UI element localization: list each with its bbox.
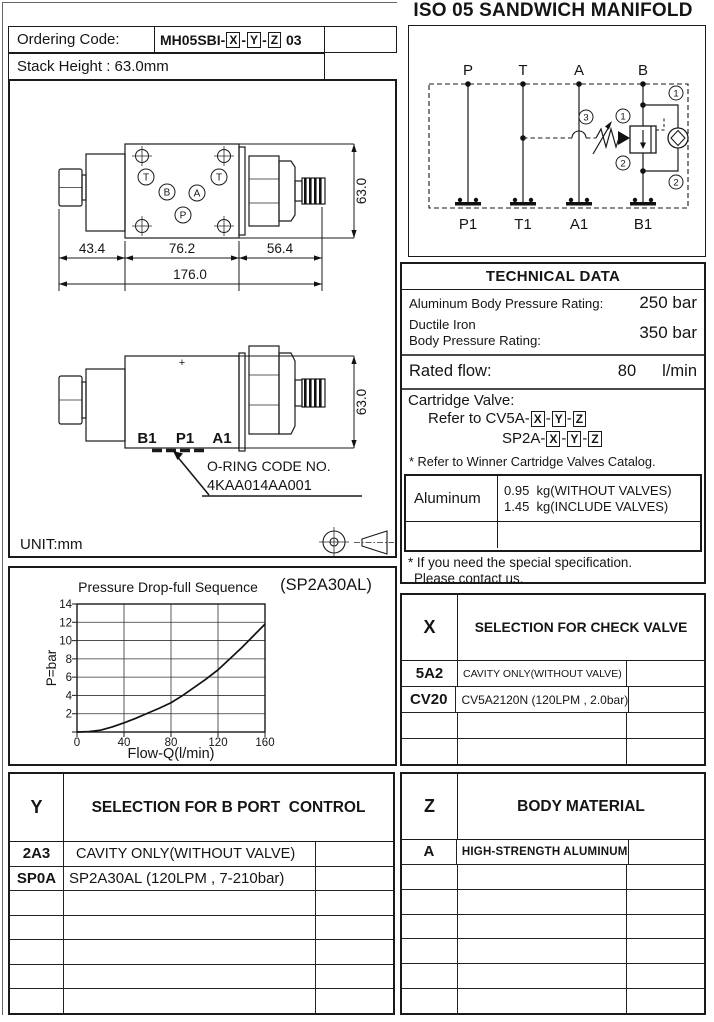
row-extra — [627, 964, 704, 988]
tick-label: 14 — [59, 599, 72, 611]
row-desc — [458, 939, 627, 963]
port-label-a: A — [574, 62, 584, 79]
table-row — [402, 713, 704, 739]
balloon-1-valve: 1 — [620, 112, 625, 123]
balloon-2-bottom: 2 — [673, 178, 678, 189]
cv5a-z-box: Z — [573, 411, 586, 427]
special-note-line2: Please contact us. — [408, 571, 632, 587]
cv5a-x-box: X — [531, 411, 545, 427]
row-extra — [316, 916, 393, 940]
tick-label: 12 — [59, 617, 72, 629]
row-extra — [627, 661, 704, 686]
iron-rating-value: 350 bar — [639, 323, 697, 343]
port-letter-b: B — [164, 188, 171, 199]
table-row — [402, 739, 704, 764]
row-extra — [627, 989, 704, 1013]
ordering-x-box: X — [226, 32, 240, 48]
cv5a-y-box: Y — [552, 411, 566, 427]
port-label-t1: T1 — [514, 216, 532, 233]
oring-leader-arrow — [173, 451, 183, 460]
row-desc — [458, 915, 627, 939]
pilot-step-dashed — [656, 118, 664, 130]
balloon-1-top: 1 — [673, 89, 678, 100]
dim-height-top: 63.0 — [354, 178, 369, 204]
port-symbols — [455, 198, 656, 206]
aluminum-rating-label: Aluminum Body Pressure Rating: — [409, 296, 603, 311]
iron-rating-label: Ductile IronBody Pressure Rating: — [409, 317, 541, 349]
table-title-y: SELECTION FOR B PORT CONTROL — [64, 774, 393, 841]
schematic-lines — [429, 81, 688, 208]
side-view-drawing: + B1 P1 A1 O-RING CODE NO. 4KAA014AA001 … — [59, 346, 369, 496]
spring-symbol — [596, 129, 619, 147]
port-letter-p: P — [180, 211, 187, 222]
table-row — [10, 989, 393, 1013]
ordering-suffix: 03 — [282, 32, 301, 48]
weight-row-empty — [406, 522, 700, 548]
row-extra — [629, 840, 704, 864]
row-desc: CV5A2120N (120LPM , 2.0bar) — [456, 687, 629, 712]
row-desc: CAVITY ONLY(WITHOUT VALVE) — [458, 661, 627, 686]
row-desc — [64, 989, 316, 1013]
row-code — [402, 890, 458, 914]
ordering-code-value: MH05SBI-X-Y-Z 03 — [155, 27, 325, 52]
sp2a-prefix: SP2A- — [502, 430, 545, 447]
rated-flow-unit: l/min — [662, 362, 697, 381]
row-code: A — [402, 840, 457, 864]
row-code: CV20 — [402, 687, 456, 712]
side-port-p1: P1 — [176, 430, 194, 447]
chart-title: Pressure Drop-full Sequence — [78, 579, 258, 595]
iron-rating-label-line2: Body Pressure Rating: — [409, 333, 541, 348]
aluminum-rating-value: 250 bar — [639, 293, 697, 313]
divider — [402, 388, 704, 390]
top-view-drawing: T T B A P 43.4 76.2 56.4 176.0 63.0 — [59, 144, 369, 291]
table-title-z: BODY MATERIAL — [458, 774, 704, 839]
tick-label: 6 — [66, 672, 72, 684]
weight-include-valves: 1.45 kg(INCLUDE VALVES) — [504, 499, 700, 515]
row-code — [402, 939, 458, 963]
row-extra — [627, 890, 704, 914]
table-row — [402, 890, 704, 915]
chart-gridlines — [77, 604, 265, 732]
port-label-a1: A1 — [570, 216, 588, 233]
row-code — [10, 916, 64, 940]
port-letter-t-right: T — [216, 173, 222, 184]
table-key-z: Z — [402, 774, 458, 839]
pressure-rating-iron-row: Ductile IronBody Pressure Rating: 350 ba… — [402, 314, 704, 352]
balloon-2-valve: 2 — [620, 159, 625, 170]
row-desc — [458, 713, 627, 738]
tick-label: 4 — [66, 690, 73, 702]
sp2a-y-box: Y — [567, 431, 581, 447]
port-label-p: P — [463, 62, 473, 79]
row-extra — [627, 939, 704, 963]
table-row: CV20CV5A2120N (120LPM , 2.0bar) — [402, 687, 704, 713]
weight-row-aluminum: Aluminum 0.95 kg(WITHOUT VALVES)1.45 kg(… — [406, 476, 700, 522]
side-port-b1: B1 — [137, 430, 156, 447]
dim-height-side: 63.0 — [354, 389, 369, 415]
table-row — [402, 989, 704, 1013]
row-extra — [316, 842, 393, 866]
port-label-b1: B1 — [634, 216, 652, 233]
balloon-3-adjust: 3 — [583, 113, 588, 124]
sep: - — [561, 430, 566, 447]
row-desc — [64, 940, 316, 964]
row-extra — [316, 965, 393, 989]
row-extra — [627, 865, 704, 889]
b-port-control-selection-table: Y SELECTION FOR B PORT CONTROL 2A3CAVITY… — [8, 772, 395, 1015]
cv5a-prefix: Refer to CV5A- — [428, 410, 530, 427]
table-header: Y SELECTION FOR B PORT CONTROL — [10, 774, 393, 842]
dim-76: 76.2 — [169, 241, 195, 256]
row-code: 2A3 — [10, 842, 64, 866]
tick-label: 8 — [66, 654, 72, 666]
sep: - — [546, 410, 551, 427]
tick-label: 2 — [66, 709, 72, 721]
weight-values: 0.95 kg(WITHOUT VALVES)1.45 kg(INCLUDE V… — [498, 476, 700, 521]
row-desc: SP2A30AL (120LPM , 7-210bar) — [64, 867, 316, 891]
pressure-drop-chart-box: Pressure Drop-full Sequence (SP2A30AL) 0… — [8, 566, 397, 766]
row-desc: CAVITY ONLY(WITHOUT VALVE) — [64, 842, 316, 866]
row-desc — [458, 890, 627, 914]
table-title-x: SELECTION FOR CHECK VALVE — [458, 595, 704, 660]
port-label-p1: P1 — [459, 216, 477, 233]
hydraulic-schematic: P T A B P1 T1 A1 B1 1 1 2 2 3 — [409, 26, 704, 255]
dim-43: 43.4 — [79, 241, 106, 256]
row-code — [10, 989, 64, 1013]
thread-knurl — [304, 178, 322, 204]
top-view-dimensions: 43.4 76.2 56.4 176.0 63.0 — [59, 144, 369, 291]
row-extra — [627, 915, 704, 939]
chart-ticks — [72, 604, 265, 737]
cartridge-ref-cv5a: Refer to CV5A-X-Y-Z — [428, 410, 587, 427]
table-row — [10, 916, 393, 941]
row-desc: HIGH-STRENGTH ALUMINUM — [457, 840, 629, 864]
row-extra — [316, 867, 393, 891]
row-extra — [629, 687, 704, 712]
row-extra — [316, 989, 393, 1013]
ordering-empty-cell — [325, 27, 396, 52]
row-code — [10, 940, 64, 964]
dim-total: 176.0 — [173, 267, 207, 282]
table-row — [10, 965, 393, 990]
oring-code-label: O-RING CODE NO. — [207, 458, 331, 474]
ordering-code-box: Ordering Code: MH05SBI-X-Y-Z 03 — [8, 26, 397, 53]
row-desc — [64, 891, 316, 915]
sp2a-z-box: Z — [588, 431, 601, 447]
catalog-note: * Refer to Winner Cartridge Valves Catal… — [409, 454, 656, 469]
table-row — [402, 964, 704, 989]
pressure-rating-aluminum-row: Aluminum Body Pressure Rating: 250 bar — [402, 292, 704, 314]
page-title: ISO 05 SANDWICH MANIFOLD — [398, 0, 708, 22]
weight-empty-cell — [498, 522, 700, 548]
row-code — [402, 713, 458, 738]
row-code — [402, 865, 458, 889]
rated-flow-label: Rated flow: — [409, 362, 492, 381]
ordering-z-box: Z — [268, 32, 281, 48]
table-row: 5A2CAVITY ONLY(WITHOUT VALVE) — [402, 661, 704, 687]
row-desc — [458, 739, 627, 764]
check-valve-selection-table: X SELECTION FOR CHECK VALVE 5A2CAVITY ON… — [400, 593, 706, 766]
ordering-sep: - — [241, 32, 246, 48]
port-label-b: B — [638, 62, 648, 79]
port-circles: T T B A P — [138, 169, 227, 223]
row-code — [402, 739, 458, 764]
weight-empty-cell — [406, 522, 498, 548]
table-row — [402, 865, 704, 890]
row-code — [402, 964, 458, 988]
table-row — [402, 915, 704, 940]
table-header: X SELECTION FOR CHECK VALVE — [402, 595, 704, 661]
row-code: 5A2 — [402, 661, 458, 686]
divider — [402, 354, 704, 356]
special-note-line1: * If you need the special specification. — [408, 555, 632, 571]
row-extra — [627, 739, 704, 764]
table-row — [10, 940, 393, 965]
tick-label: 10 — [59, 636, 72, 648]
ordering-y-box: Y — [247, 32, 261, 48]
table-row: AHIGH-STRENGTH ALUMINUM — [402, 840, 704, 865]
unit-label: UNIT:mm — [20, 536, 83, 553]
body-material-selection-table: Z BODY MATERIAL AHIGH-STRENGTH ALUMINUM — [400, 772, 706, 1015]
tick-label: 0 — [74, 737, 80, 749]
thread-knurl-side — [304, 379, 322, 407]
sp2a-x-box: X — [546, 431, 560, 447]
weight-table: Aluminum 0.95 kg(WITHOUT VALVES)1.45 kg(… — [404, 474, 702, 552]
special-note: * If you need the special specification.… — [408, 555, 632, 587]
rated-flow-value: 80 — [618, 362, 636, 381]
table-row — [402, 939, 704, 964]
cartridge-valve-label: Cartridge Valve: — [408, 392, 514, 409]
cartridge-ref-sp2a: SP2A-X-Y-Z — [502, 430, 603, 447]
sep: - — [582, 430, 587, 447]
oring-code-value: 4KAA014AA001 — [207, 478, 312, 494]
page-edge-top — [2, 2, 397, 3]
table-key-y: Y — [10, 774, 64, 841]
row-extra — [627, 713, 704, 738]
technical-data-box: TECHNICAL DATA Aluminum Body Pressure Ra… — [400, 262, 706, 584]
chart-ylabel: P=bar — [44, 649, 59, 686]
row-desc — [64, 916, 316, 940]
plus-mark: + — [179, 357, 185, 369]
row-desc — [64, 965, 316, 989]
row-desc — [458, 865, 627, 889]
pilot-triangle — [618, 131, 630, 145]
row-desc — [458, 964, 627, 988]
sep: - — [567, 410, 572, 427]
pressure-drop-chart: Pressure Drop-full Sequence (SP2A30AL) 0… — [10, 568, 395, 764]
row-code — [10, 965, 64, 989]
chart-xlabel: Flow-Q(l/min) — [128, 746, 215, 762]
weight-without-valves: 0.95 kg(WITHOUT VALVES) — [504, 483, 700, 499]
row-code: SP0A — [10, 867, 64, 891]
technical-data-title: TECHNICAL DATA — [402, 264, 704, 290]
table-key-x: X — [402, 595, 458, 660]
dim-56: 56.4 — [267, 241, 294, 256]
ordering-sep: - — [262, 32, 267, 48]
rated-flow-row: Rated flow: 80 l/min — [402, 357, 704, 385]
table-row: SP0ASP2A30AL (120LPM , 7-210bar) — [10, 867, 393, 892]
page-edge-left — [2, 2, 3, 1015]
table-row — [10, 891, 393, 916]
projection-symbol — [319, 527, 394, 556]
stack-height-label: Stack Height : 63.0mm — [17, 58, 169, 75]
row-code — [402, 915, 458, 939]
port-letter-a: A — [194, 189, 201, 200]
row-extra — [316, 940, 393, 964]
iron-rating-label-line1: Ductile Iron — [409, 317, 476, 332]
side-port-a1: A1 — [212, 430, 231, 447]
chart-annotation: (SP2A30AL) — [280, 576, 372, 594]
weight-material: Aluminum — [406, 476, 498, 521]
table-header: Z BODY MATERIAL — [402, 774, 704, 840]
dimension-drawings-box: T T B A P 43.4 76.2 56.4 176.0 63.0 — [8, 79, 397, 558]
row-extra — [316, 891, 393, 915]
port-letter-t-left: T — [143, 173, 149, 184]
ordering-code-label: Ordering Code: — [9, 27, 155, 52]
tick-label: 160 — [255, 737, 274, 749]
row-code — [402, 989, 458, 1013]
stack-height-box: Stack Height : 63.0mm — [8, 53, 325, 80]
row-code — [10, 891, 64, 915]
dimension-drawings: T T B A P 43.4 76.2 56.4 176.0 63.0 — [10, 81, 395, 556]
hydraulic-schematic-box: P T A B P1 T1 A1 B1 1 1 2 2 3 — [408, 25, 706, 257]
table-row: 2A3CAVITY ONLY(WITHOUT VALVE) — [10, 842, 393, 867]
ordering-prefix: MH05SBI- — [160, 32, 225, 48]
row-desc — [458, 989, 627, 1013]
chart-tick-labels: 040801201602468101214 — [59, 599, 274, 749]
port-label-t: T — [518, 62, 527, 79]
